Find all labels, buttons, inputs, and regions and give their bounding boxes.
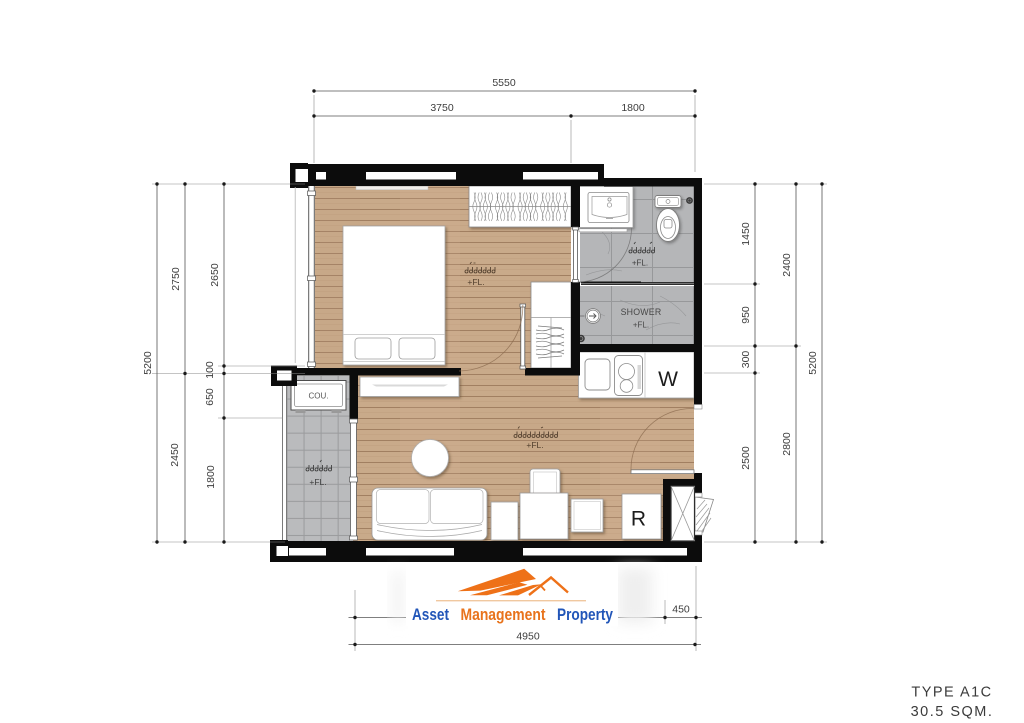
svg-text:30.5 SQM.: 30.5 SQM. <box>911 704 994 720</box>
svg-text:2500: 2500 <box>740 446 752 470</box>
svg-text:2450: 2450 <box>169 443 181 467</box>
svg-text:5200: 5200 <box>807 351 819 375</box>
svg-text:650: 650 <box>204 388 216 406</box>
svg-text:+FL.: +FL. <box>633 321 649 330</box>
svg-text:TYPE A1C: TYPE A1C <box>911 685 992 701</box>
svg-text:+FL.: +FL. <box>309 477 326 487</box>
svg-text:950: 950 <box>740 306 752 324</box>
svg-text:Property: Property <box>557 606 614 624</box>
svg-text:3750: 3750 <box>430 102 454 114</box>
svg-text:5200: 5200 <box>142 351 154 375</box>
svg-text:5550: 5550 <box>492 77 516 89</box>
svg-text:+FL.: +FL. <box>526 440 543 450</box>
svg-text:SHOWER: SHOWER <box>621 307 662 317</box>
svg-text:4950: 4950 <box>516 631 540 643</box>
svg-text:450: 450 <box>672 604 690 616</box>
svg-text:R: R <box>631 508 646 531</box>
svg-text:Management: Management <box>461 606 546 624</box>
svg-text:300: 300 <box>740 351 752 369</box>
svg-text:2400: 2400 <box>781 253 793 277</box>
svg-text:1450: 1450 <box>740 222 752 246</box>
svg-text:2750: 2750 <box>170 267 182 291</box>
svg-text:Asset: Asset <box>412 606 449 624</box>
svg-text:2800: 2800 <box>781 432 793 456</box>
svg-text:COU.: COU. <box>309 392 329 401</box>
svg-text:1800: 1800 <box>621 102 645 114</box>
svg-text:1800: 1800 <box>205 465 217 489</box>
svg-text:+FL.: +FL. <box>632 259 648 268</box>
svg-text:+FL.: +FL. <box>467 277 484 287</box>
svg-text:W: W <box>658 368 678 391</box>
svg-text:100: 100 <box>204 361 216 379</box>
svg-text:2650: 2650 <box>209 263 221 287</box>
